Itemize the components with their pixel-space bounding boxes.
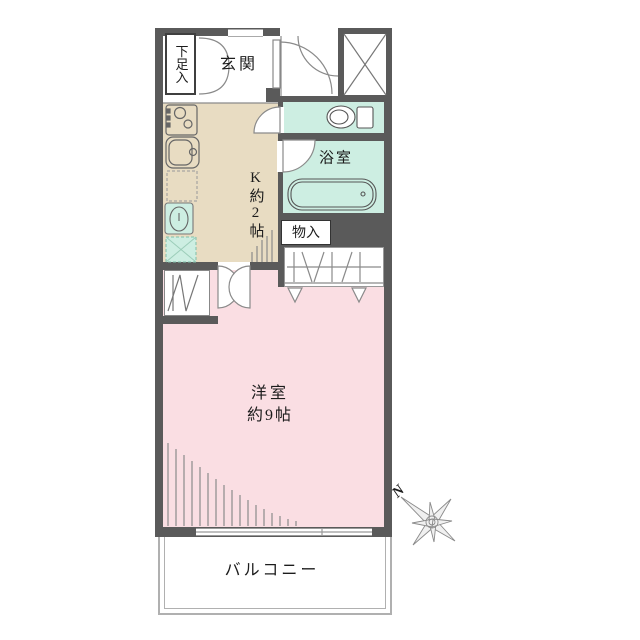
entrance-label: 玄関 bbox=[220, 50, 258, 74]
compass-north-label: N bbox=[389, 482, 409, 502]
balcony-label: バルコニー bbox=[225, 556, 320, 580]
entrance-door-opening bbox=[228, 29, 263, 37]
kitchen-label: K約2帖 bbox=[246, 170, 267, 240]
floorplan-canvas: 下足入 玄関 K約2帖 浴室 物入 洋室 約9帖 バルコニー N bbox=[0, 0, 640, 640]
wall-room-top-right bbox=[250, 262, 283, 270]
bathroom-label: 浴室 bbox=[319, 147, 353, 168]
folding-closet bbox=[164, 270, 210, 316]
wall-right bbox=[384, 96, 392, 537]
wall-left bbox=[155, 28, 163, 537]
compass-icon bbox=[401, 497, 455, 545]
storage-label: 物入 bbox=[292, 222, 320, 242]
wall-porch-bottom bbox=[278, 96, 392, 102]
main-room-label: 洋室 bbox=[251, 379, 289, 403]
wall-toilet-bath bbox=[283, 133, 384, 141]
shoe-closet-label: 下足入 bbox=[172, 45, 191, 84]
wall-room-top-left bbox=[155, 262, 218, 270]
shaft-inner bbox=[344, 34, 386, 95]
hanger-closet bbox=[284, 247, 384, 287]
toilet-door-gap bbox=[277, 107, 284, 133]
wall-closet-bottom bbox=[155, 316, 218, 324]
double-door-opening bbox=[218, 262, 250, 270]
toilet-room-floor bbox=[283, 102, 384, 133]
main-room-size-label: 約9帖 bbox=[247, 401, 293, 425]
window-opening bbox=[196, 528, 372, 536]
bath-door-gap bbox=[277, 141, 284, 172]
